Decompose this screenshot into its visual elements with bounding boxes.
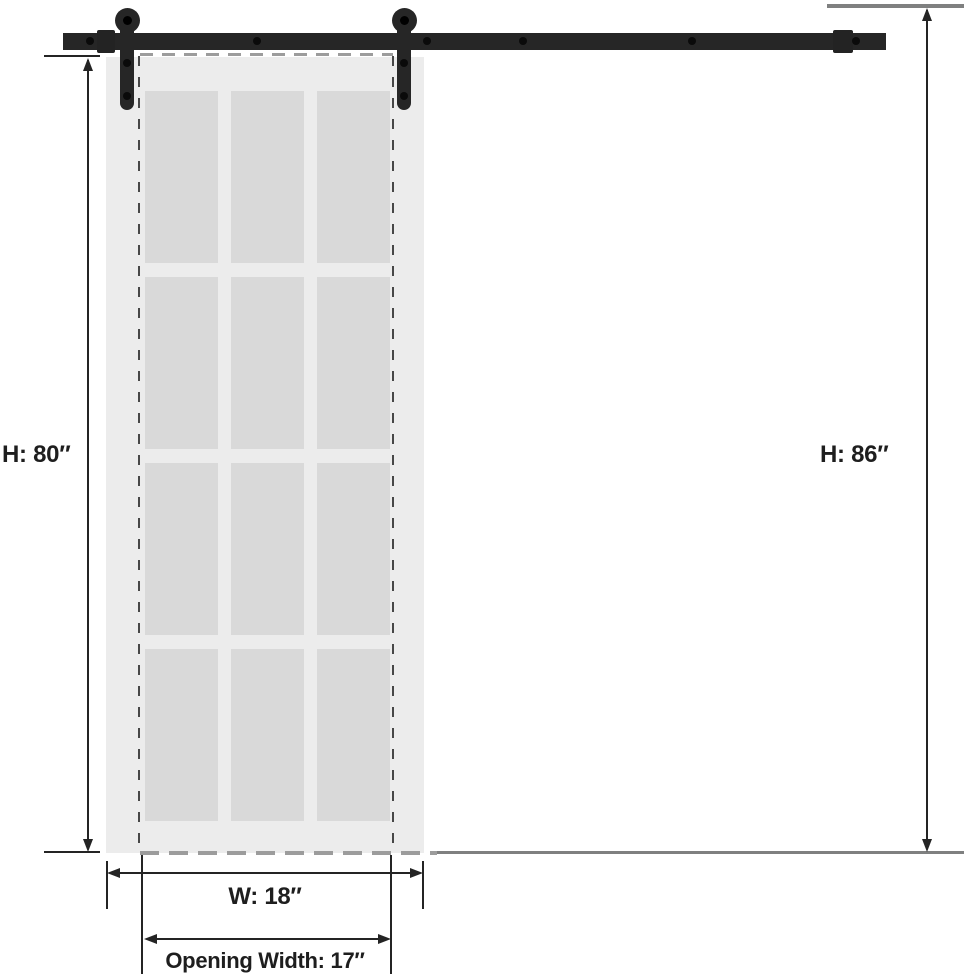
opening-width-label: Opening Width: 17″ [165, 948, 364, 974]
glass-pane [231, 277, 304, 449]
strap-bolt [123, 59, 131, 67]
track-top-reference-line [827, 4, 964, 8]
door-width-label: W: 18″ [228, 883, 301, 911]
arrow-left-icon [107, 868, 120, 878]
arrow-left-icon [144, 934, 157, 944]
glass-pane [231, 91, 304, 263]
opening-outline-bottom-dashed [140, 851, 437, 855]
door-height-tick-top [44, 55, 100, 57]
glass-pane [317, 91, 390, 263]
arrow-down-icon [83, 839, 93, 852]
roller-hanger-strap-right [397, 20, 411, 110]
wheel-hub-bolt [123, 16, 132, 25]
strap-bolt [400, 92, 408, 100]
rail-bolt [519, 37, 527, 45]
barn-door-dimension-diagram: H: 80″ H: 86″ W: 18″ Opening Width: 17″ [0, 0, 964, 974]
glass-pane [231, 649, 304, 821]
opening-outline-right-dashed [392, 56, 394, 851]
rail-bolt [423, 37, 431, 45]
track-bracket-right [833, 30, 853, 53]
glass-pane-grid [145, 91, 390, 821]
wheel-hub-bolt [400, 16, 409, 25]
strap-bolt [400, 59, 408, 67]
overall-height-label: H: 86″ [820, 441, 888, 469]
opening-outline-left-dashed [138, 56, 140, 851]
opening-width-ext-line-left [141, 855, 143, 974]
rail-bolt [688, 37, 696, 45]
glass-pane [145, 91, 218, 263]
floor-reference-line [437, 851, 964, 854]
strap-bolt [123, 92, 131, 100]
glass-pane [145, 463, 218, 635]
opening-outline-top-dashed [140, 53, 393, 56]
roller-wheel-right [392, 8, 417, 33]
door-height-label: H: 80″ [2, 441, 70, 469]
rail-bolt [852, 37, 860, 45]
roller-wheel-left [115, 8, 140, 33]
glass-pane [317, 277, 390, 449]
arrow-right-icon [410, 868, 423, 878]
glass-pane [317, 463, 390, 635]
track-bracket-left [97, 30, 115, 53]
glass-pane [145, 277, 218, 449]
overall-height-dimension-line [926, 10, 928, 843]
opening-width-dimension-line [155, 938, 380, 940]
arrow-right-icon [378, 934, 391, 944]
door-height-dimension-line [87, 60, 89, 845]
glass-pane [317, 649, 390, 821]
arrow-up-icon [922, 8, 932, 21]
glass-pane [231, 463, 304, 635]
arrow-up-icon [83, 58, 93, 71]
rail-bolt [253, 37, 261, 45]
opening-width-ext-line-right [390, 855, 392, 974]
door-panel [106, 57, 424, 853]
door-width-dimension-line [118, 872, 412, 874]
glass-pane [145, 649, 218, 821]
roller-hanger-strap-left [120, 20, 134, 110]
arrow-down-icon [922, 839, 932, 852]
track-rail [63, 33, 886, 50]
rail-bolt [86, 37, 94, 45]
